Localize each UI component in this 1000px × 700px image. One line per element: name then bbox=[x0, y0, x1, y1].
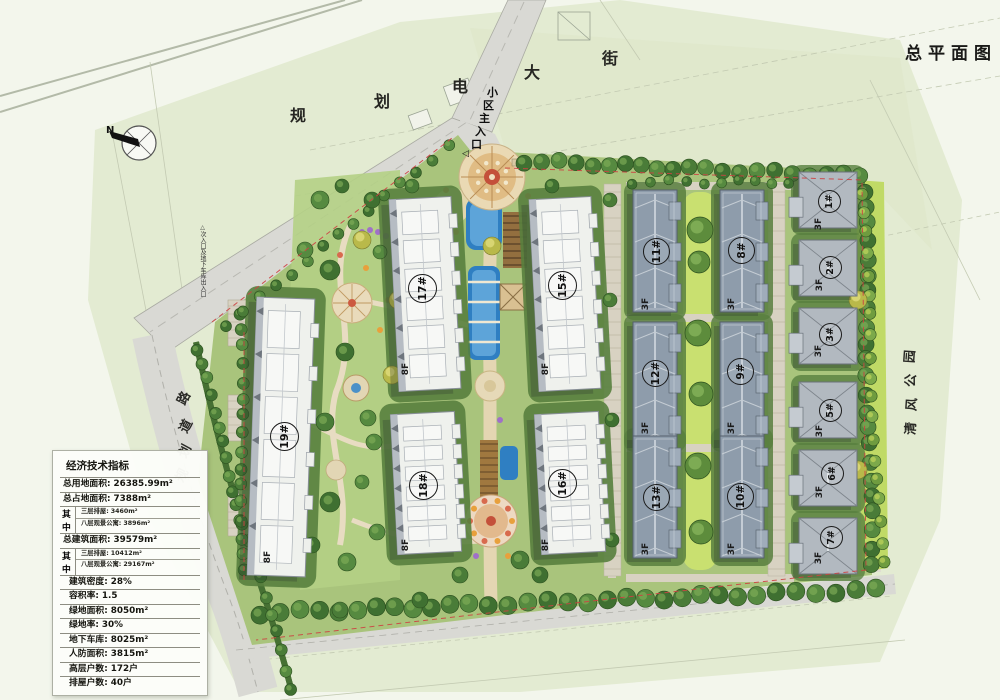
site-plan: 总平面图 N 规 划 电 大 街 路 道 划 规 园 公 风 清 小 区 主 入… bbox=[0, 0, 1000, 700]
street-dianda-char: 大 bbox=[524, 65, 540, 81]
street-dianda-char: 规 bbox=[290, 108, 306, 124]
stats-panel: 经济技术指标 总用地面积:26385.99m² 总占地面积:7388m² 其中 … bbox=[52, 450, 208, 696]
building-label-6: 6# bbox=[821, 462, 844, 485]
floors-19: 8F bbox=[263, 551, 273, 563]
building-label-18: 18# bbox=[409, 471, 438, 500]
page-title: 总平面图 bbox=[905, 46, 997, 63]
main-entrance-char: 入 bbox=[475, 126, 486, 137]
stat-row: 排屋户数:40户 bbox=[60, 676, 200, 691]
building-label-11: 11# bbox=[643, 238, 670, 265]
street-dianda-char: 电 bbox=[452, 79, 468, 95]
building-label-1: 1# bbox=[818, 190, 841, 213]
building-label-12: 12# bbox=[642, 360, 669, 387]
stat-row-group: 其中 三层排屋:10412m² 八层观景公寓:29167m² bbox=[60, 548, 200, 575]
building-label-19: 19# bbox=[270, 422, 299, 451]
floors-3: 3F bbox=[814, 345, 824, 357]
stat-row: 高层户数:172户 bbox=[60, 662, 200, 677]
stat-row: 绿地率:30% bbox=[60, 618, 200, 633]
building-label-17: 17# bbox=[408, 274, 437, 303]
building-label-13: 13# bbox=[643, 484, 670, 511]
floors-1: 3F bbox=[814, 218, 824, 230]
main-entrance-char: 小 bbox=[487, 87, 498, 98]
main-entrance-char: 区 bbox=[483, 100, 494, 111]
stat-subrow: 八层观景公寓:29167m² bbox=[76, 559, 200, 571]
secondary-entrance-label: △次入口及地下车库出入口 bbox=[199, 224, 205, 300]
floors-6: 3F bbox=[815, 486, 825, 498]
floors-18: 8F bbox=[401, 539, 411, 551]
main-entrance-char: 主 bbox=[479, 113, 490, 124]
stat-row-group: 其中 三层排屋:3460m² 八层观景公寓:3896m² bbox=[60, 506, 200, 533]
floors-8: 3F bbox=[727, 298, 737, 310]
building-label-15: 15# bbox=[548, 271, 577, 300]
floors-16: 8F bbox=[541, 539, 551, 551]
building-label-2: 2# bbox=[819, 256, 842, 279]
floors-7: 3F bbox=[814, 552, 824, 564]
building-label-10: 10# bbox=[727, 483, 754, 510]
floors-11: 3F bbox=[641, 298, 651, 310]
stat-subrow: 三层排屋:10412m² bbox=[76, 549, 200, 560]
stat-row: 人防面积:3815m² bbox=[60, 647, 200, 662]
building-label-5: 5# bbox=[819, 399, 842, 422]
building-label-3: 3# bbox=[819, 323, 842, 346]
floors-2: 3F bbox=[815, 279, 825, 291]
stat-row: 绿地面积:8050m² bbox=[60, 604, 200, 619]
floors-12: 3F bbox=[641, 422, 651, 434]
street-dianda-char: 划 bbox=[374, 94, 390, 110]
main-entrance-char: 口 bbox=[471, 139, 482, 150]
stat-row: 容积率:1.5 bbox=[60, 589, 200, 604]
park-name-char: 风 bbox=[906, 398, 920, 412]
stat-row: 总建筑面积:39579m² bbox=[60, 533, 200, 548]
stat-row: 地下车库:8025m² bbox=[60, 633, 200, 648]
north-arrow-label: N bbox=[106, 126, 114, 136]
stats-title: 经济技术指标 bbox=[60, 456, 200, 477]
park-name-char: 园 bbox=[904, 350, 918, 364]
building-label-16: 16# bbox=[548, 469, 577, 498]
stat-subrow: 八层观景公寓:3896m² bbox=[76, 518, 200, 530]
street-dianda-char: 街 bbox=[602, 51, 618, 67]
stat-subrow: 三层排屋:3460m² bbox=[76, 507, 200, 518]
main-entrance-marker: ◁ bbox=[462, 150, 469, 159]
floors-5: 3F bbox=[815, 425, 825, 437]
building-label-9: 9# bbox=[727, 358, 754, 385]
stat-row: 总用地面积:26385.99m² bbox=[60, 477, 200, 492]
floors-13: 3F bbox=[641, 543, 651, 555]
building-label-8: 8# bbox=[728, 237, 755, 264]
stat-row: 建筑密度:28% bbox=[60, 575, 200, 590]
floors-9: 3F bbox=[727, 422, 737, 434]
floors-17: 8F bbox=[401, 363, 411, 375]
stat-row: 总占地面积:7388m² bbox=[60, 492, 200, 507]
building-label-7: 7# bbox=[820, 526, 843, 549]
floors-10: 3F bbox=[727, 543, 737, 555]
floors-15: 8F bbox=[541, 363, 551, 375]
park-name-char: 清 bbox=[905, 422, 919, 436]
park-name-char: 公 bbox=[905, 374, 919, 388]
